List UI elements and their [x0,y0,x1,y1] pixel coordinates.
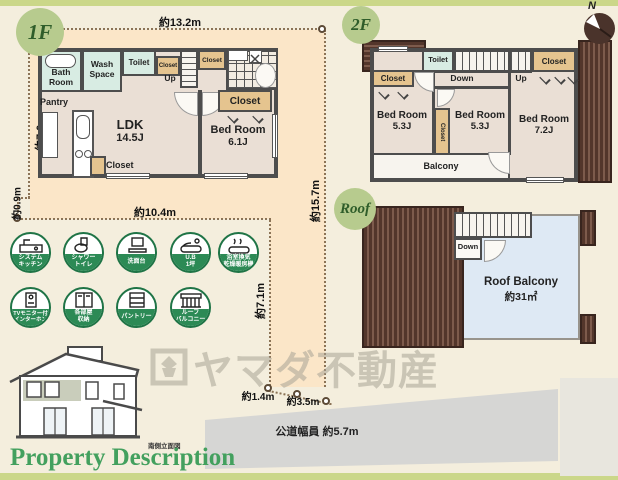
bathtub-icon [179,237,203,254]
plot-line-left [28,30,30,198]
kitchen-icon [19,237,43,254]
toilet-icon [72,237,96,254]
roof-down-label: Down [452,243,484,252]
amenity-label-line2: インターホン [12,317,49,324]
shoe-cabinet [228,50,248,61]
house-elevation [8,346,148,442]
dim-left-lower: 約0.9m [9,174,24,234]
window [526,177,564,183]
amenity-label-line2: 1坪 [172,262,209,269]
kitchen-sink [76,115,90,139]
amenity-label: 浴室換気乾燥暖房機 [220,254,257,271]
watermark: ヤマダ不動産 [150,338,439,396]
entrance-x-box [249,50,262,63]
kitchen-closet-label: Closet [106,160,150,170]
roof-balcony-area-label: 約31㎡ [462,291,580,303]
bedroom-divider-wall [508,48,511,155]
amenity-label: パントリー [118,309,155,326]
compass-north-label: N [585,0,599,13]
bathroom-label-line2: Room [49,77,73,87]
amenity-bath-dryer: 浴室換気乾燥暖房機 [218,232,259,273]
floor2-left-closet: Closet [372,70,414,87]
floor2-mid-closet: Closet [434,108,450,156]
plot-line-right [324,30,326,387]
bathroom-label: BathRoom [40,68,82,88]
pantry-cabinet [42,112,58,158]
floor1-toilet-label: Toilet [122,58,156,67]
amenity-unit-bath: U.B1坪 [170,232,211,273]
amenity-label-line1: パントリー [118,314,155,321]
floor1-up-label: Up [160,74,180,84]
floor1-stairs [180,50,198,88]
bedroom2f-3-size: 7.2J [512,126,576,137]
pantry-label: Pantry [40,97,84,107]
roof-eave-right [580,210,596,246]
bedroom2f-3-label: Bed Room [512,114,576,126]
amenity-label-line2: トイレ [65,262,102,269]
bedroom2f-1-size: 5.3J [372,122,432,133]
ldk-label: LDK [95,118,165,133]
amenity-label: 洗面台 [118,254,155,271]
floor2-right-closet: Closet [532,50,576,72]
window [204,173,248,179]
floor2-down-label: Down [444,74,480,84]
floorplan-page: 公道幅員 約5.7m 約13.2m 約7.0m 約0.9m 約10.4m 約15… [0,0,618,480]
amenity-label: U.B1坪 [172,254,209,271]
amenity-tv-intercom: TVモニター付インターホン [10,287,51,328]
amenity-system-kitchen: システムキッチン [10,232,51,273]
bedroom-closet: Closet [218,90,272,112]
amenity-shower-toilet: シャワートイレ [63,232,104,273]
bath-dryer-icon [227,237,251,254]
amenity-label-line2: 乾燥暖房機 [220,262,257,269]
amenity-label-line1: 洗面台 [118,259,155,266]
roof-badge: Roof [334,188,376,230]
compass-needle [584,13,615,44]
stove-burner [75,150,83,158]
page-title: Property Description [10,444,235,472]
floor2-badge: 2F [342,6,380,44]
amenity-label: 各部屋収納 [65,309,102,326]
amenity-label-line2: バルコニー [172,317,209,324]
roof-eave-right [580,314,596,344]
compass-icon [584,13,615,44]
bedroom1f-label: Bed Room [203,124,273,137]
window [272,114,278,158]
wash-label-line1: Wash [91,59,113,69]
balcony-label: Balcony [372,161,510,171]
washstand-icon [125,237,149,254]
pantry-shelf-icon [125,292,149,309]
roof-slope [362,206,464,348]
amenity-label: シャワートイレ [65,254,102,271]
wardrobe-icon [72,292,96,309]
x-mark-icon [250,54,260,64]
amenity-pantry: パントリー [116,287,157,328]
wash-label-line2: Space [89,69,114,79]
amenity-roof-balcony: ルーフバルコニー [170,287,211,328]
amenity-washstand: 洗面台 [116,232,157,273]
watermark-text: ヤマダ不動産 [193,338,439,396]
window [378,46,408,52]
road-width-label: 公道幅員 約5.7m [252,426,382,439]
amenity-label-line2: キッチン [12,262,49,269]
wash-space-label: WashSpace [82,60,122,80]
watermark-logo-icon [150,348,188,386]
window [106,173,150,179]
bedroom2f-2-label: Bed Room [452,110,508,122]
floor1-top-closet: Closet [198,50,226,70]
ldk-size-label: 14.5J [95,132,165,145]
amenity-label-line2: 収納 [65,317,102,324]
roof-stairs [454,212,532,238]
bedroom1f-size-label: 6.1J [203,137,273,149]
plot-corner-marker [318,25,326,33]
roof-eave-2f-right [578,40,612,183]
dim-top: 約13.2m [140,14,220,30]
amenity-label: ルーフバルコニー [172,309,209,326]
dim-bottom: 約10.4m [120,204,190,220]
amenity-label: TVモニター付インターホン [12,309,49,326]
kitchen-closet [90,156,106,176]
dim-inner: 約7.1m [252,271,268,331]
bathroom-label-line1: Bath [52,67,71,77]
roof-balcony-label: Roof Balcony [462,276,580,289]
amenity-label: システムキッチン [12,254,49,271]
bedroom2f-1-label: Bed Room [372,110,432,122]
floor2-toilet-label: Toilet [422,56,454,65]
floor2-stairs [454,50,532,72]
amenity-room-storage: 各部屋収納 [63,287,104,328]
floor1-badge: 1F [16,8,64,56]
dim-right: 約15.7m [307,171,323,231]
balcony-railing-icon [179,292,203,309]
bathtub [45,54,76,68]
intercom-icon [19,292,43,309]
entrance-door-arc [255,63,276,88]
bedroom2f-2-size: 5.3J [452,122,508,133]
